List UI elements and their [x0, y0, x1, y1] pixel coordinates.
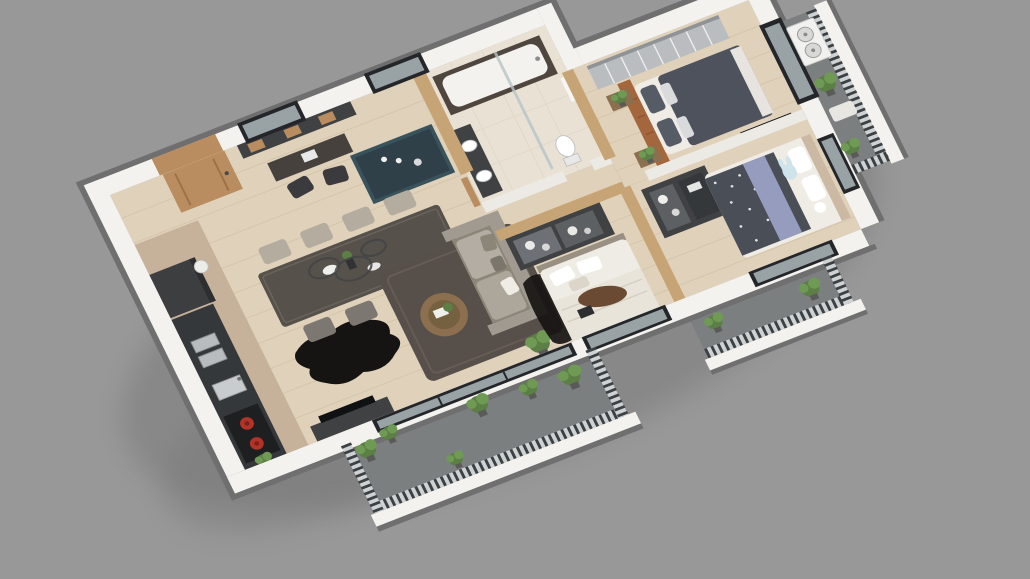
floor-plan-canvas	[0, 0, 1030, 579]
render-stage	[0, 0, 1030, 579]
